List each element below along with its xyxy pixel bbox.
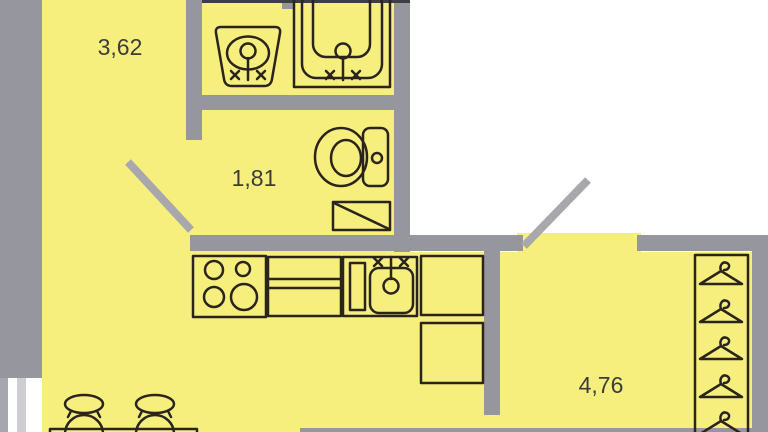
window: [0, 378, 42, 432]
wall-bottom-outer: [300, 428, 768, 432]
wall-bath-bottom: [197, 95, 410, 110]
window-line-outer: [0, 378, 8, 432]
room-area-label-top-left: 3,62: [98, 34, 143, 60]
wall-hall-top: [637, 235, 768, 251]
wall-kitchen-top: [190, 235, 523, 251]
window-line-inner: [17, 378, 26, 432]
wall-top-edge-line: [202, 0, 410, 3]
wall-kitchen-hall-divider: [484, 245, 500, 415]
room-area-label-hall: 4,76: [579, 372, 624, 398]
wall-right-outer: [752, 251, 768, 432]
wall-bath-left: [186, 0, 202, 140]
floor-hall-block: [410, 252, 768, 432]
wall-left-outer: [0, 0, 42, 378]
wall-wc-right: [394, 0, 410, 252]
floor-plan-canvas: 3,62 1,81 4,76: [0, 0, 768, 432]
floor-plan: 3,62 1,81 4,76: [0, 0, 768, 432]
floor-left-block: [42, 0, 410, 432]
room-area-label-wc: 1,81: [232, 165, 277, 191]
